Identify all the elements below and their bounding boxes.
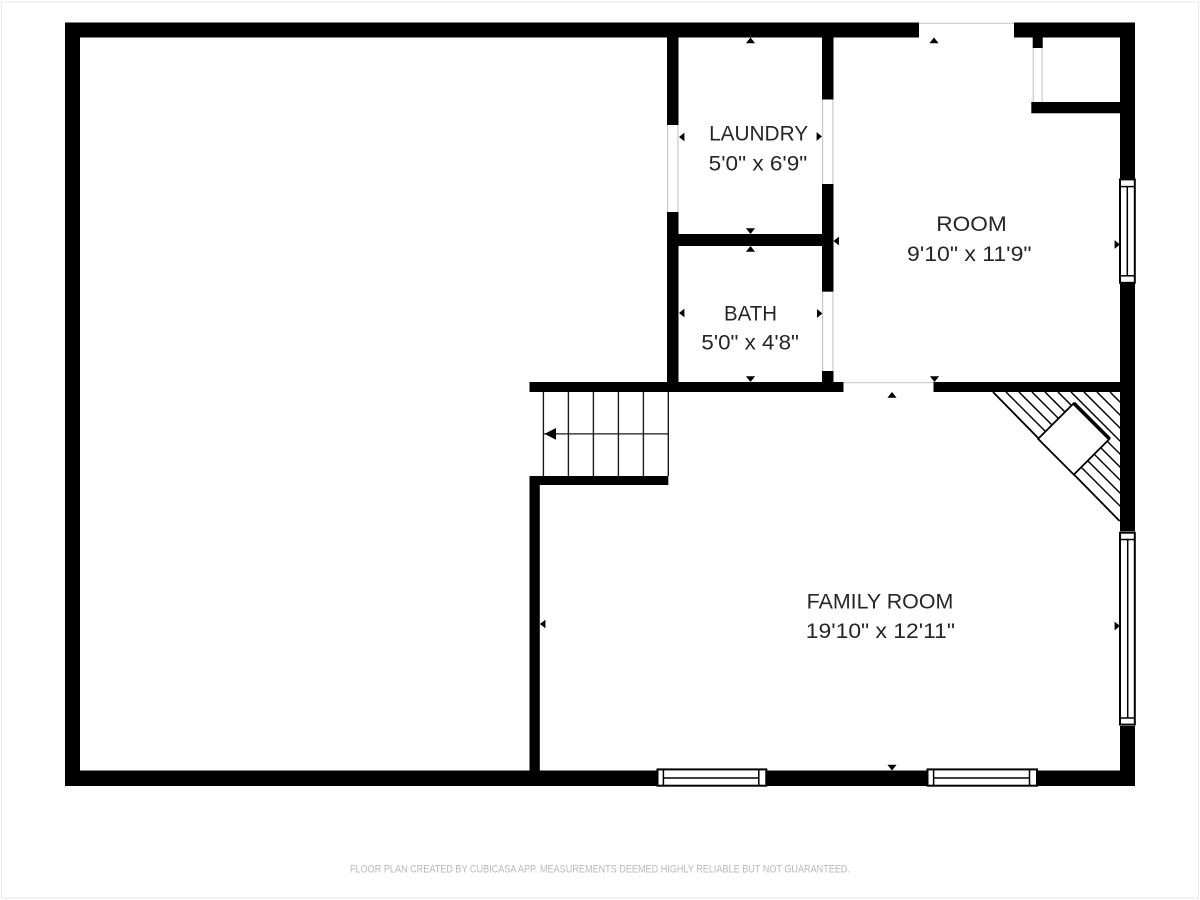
svg-text:LAUNDRY: LAUNDRY: [709, 123, 808, 146]
svg-text:FLOOR PLAN CREATED BY CUBICASA: FLOOR PLAN CREATED BY CUBICASA APP. MEAS…: [350, 864, 850, 876]
svg-text:9'10" x 11'9": 9'10" x 11'9": [907, 243, 1032, 266]
svg-text:5'0" x 6'9": 5'0" x 6'9": [709, 152, 808, 175]
svg-text:19'10" x 12'11": 19'10" x 12'11": [806, 620, 955, 643]
svg-text:BATH: BATH: [724, 303, 777, 326]
svg-text:5'0" x 4'8": 5'0" x 4'8": [701, 332, 799, 355]
svg-text:ROOM: ROOM: [936, 213, 1007, 236]
svg-text:FAMILY ROOM: FAMILY ROOM: [807, 591, 954, 614]
